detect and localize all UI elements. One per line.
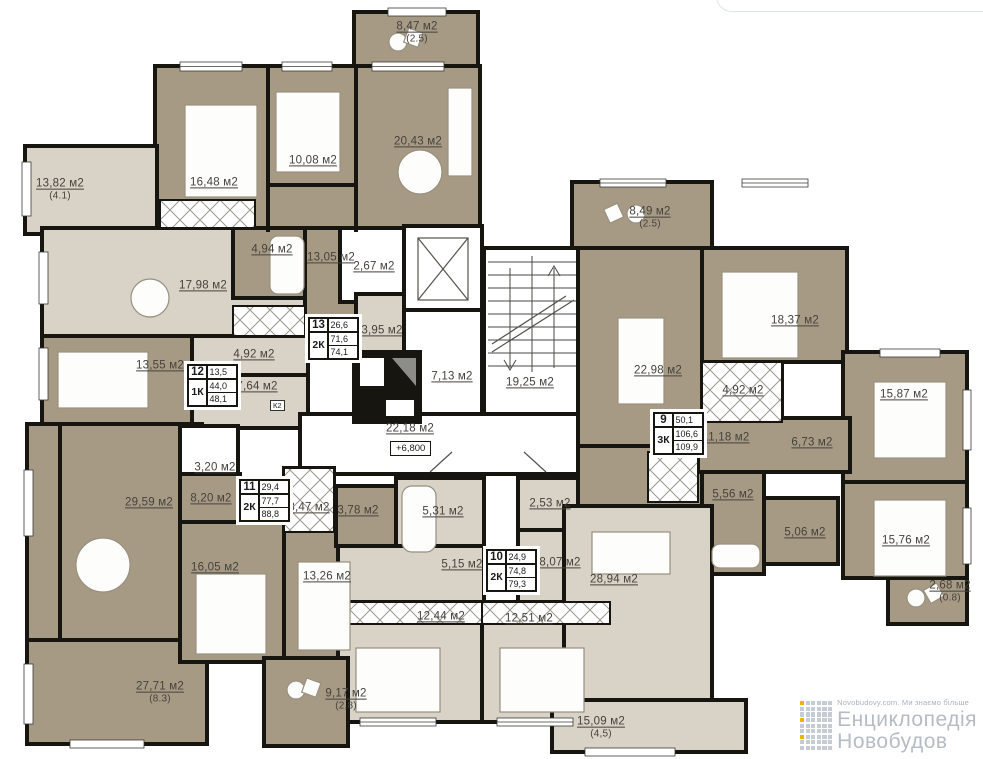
apartment-number: 13 (310, 319, 327, 331)
watermark-logo-square (800, 718, 804, 722)
watermark-logo-square (806, 735, 810, 739)
apartment-number: 12 (189, 366, 206, 378)
room-area-label: 9,17 м2(2,8) (325, 688, 366, 713)
room-area-label: 5,56 м2 (712, 488, 753, 501)
watermark: Novobudovy.com. Ми знаємо більше Енцикло… (800, 699, 977, 753)
watermark-logo-square (828, 707, 832, 711)
watermark-logo-square (811, 707, 815, 711)
floor-level-badge: +6,800 (390, 441, 431, 456)
net-area-value: 74,8 (507, 565, 535, 577)
living-area-value: 26,6 (329, 319, 357, 331)
utility-shaft (352, 350, 422, 424)
room-area-value: 2,68 м2 (929, 580, 970, 592)
watermark-logo-square (800, 712, 804, 716)
watermark-logo-square (811, 746, 815, 750)
room-area-value: 22,18 м2 (386, 422, 434, 434)
room-area-label: 3,95 м2 (361, 324, 402, 337)
room-area-value: 3,95 м2 (361, 324, 402, 336)
room-area-label: 13,26 м2 (303, 570, 351, 583)
room-area-value: 13,55 м2 (136, 359, 184, 371)
watermark-logo-square (800, 701, 804, 705)
net-area-value: 77,7 (260, 495, 288, 507)
watermark-title-line2: Новобудов (837, 731, 977, 753)
room-area-label: 3,20 м2 (194, 461, 235, 474)
watermark-logo-square (800, 735, 804, 739)
watermark-logo-square (828, 740, 832, 744)
watermark-logo-square (817, 701, 821, 705)
room-area-value: 8,20 м2 (190, 492, 231, 504)
room-area-value: 15,09 м2 (577, 716, 625, 728)
watermark-logo-square (800, 707, 804, 711)
room-area-value: 18,37 м2 (771, 314, 819, 326)
room-area-label: 8,20 м2 (190, 492, 231, 505)
room-area-value: 12,51 м2 (505, 612, 553, 624)
room-area-label: 3,47 м2 (288, 501, 329, 514)
room-area-label: 10,08 м2 (289, 154, 337, 167)
room-area-value: 2,53 м2 (529, 497, 570, 509)
apartment-room-count: 2К (241, 495, 258, 521)
watermark-logo-square (817, 740, 821, 744)
room-area-label: 17,98 м2 (179, 279, 227, 292)
room-area-value: 4,94 м2 (251, 243, 292, 255)
watermark-logo-square (817, 729, 821, 733)
watermark-logo-square (817, 746, 821, 750)
apartment-spec-table: 102К24,974,879,3 (486, 549, 537, 592)
room-area-label: 6,73 м2 (791, 436, 832, 449)
watermark-logo-square (817, 718, 821, 722)
room-area-value: 13,05 м2 (307, 251, 355, 263)
room-area-value: 29,59 м2 (125, 496, 173, 508)
room-area-value: 3,47 м2 (288, 501, 329, 513)
ui-card-corner (716, 0, 983, 12)
room-area-value: 5,56 м2 (712, 488, 753, 500)
room-area-label: 8,07 м2 (539, 556, 580, 569)
room-area-value: 17,98 м2 (179, 279, 227, 291)
watermark-logo-square (800, 740, 804, 744)
room-area-extra: (8.3) (136, 694, 184, 706)
room-area-label: 29,59 м2 (125, 496, 173, 509)
room-area-value: 16,48 м2 (190, 176, 238, 188)
watermark-logo-square (806, 724, 810, 728)
room-area-value: 27,71 м2 (136, 681, 184, 693)
apartment-room-count: 3К (655, 428, 672, 454)
room-area-value: 7,13 м2 (431, 370, 472, 382)
room-area-label: 28,94 м2 (590, 573, 638, 586)
room-area-value: 9,17 м2 (325, 688, 366, 700)
total-area-value: 88,8 (260, 508, 288, 520)
room-area-label: 3,78 м2 (337, 504, 378, 517)
watermark-logo-square (811, 735, 815, 739)
watermark-logo-square (811, 740, 815, 744)
room-area-value: 13,82 м2 (36, 178, 84, 190)
walls-and-rooms (25, 12, 967, 752)
apartment-number: 11 (241, 481, 258, 493)
room-area-label: 4,94 м2 (251, 243, 292, 256)
room-area-label: 19,25 м2 (506, 376, 554, 389)
total-area-value: 79,3 (507, 578, 535, 590)
room-area-extra: (4.1) (36, 191, 84, 203)
watermark-logo-square (828, 724, 832, 728)
watermark-tagline: Novobudovy.com. Ми знаємо більше (837, 699, 977, 707)
apartment-spec-table: 132К26,671,674,1 (308, 317, 359, 360)
room-area-label: 8,49 м2(2.5) (629, 206, 670, 231)
watermark-logo-square (828, 746, 832, 750)
room-area-value: 15,87 м2 (880, 388, 928, 400)
watermark-logo-square (817, 735, 821, 739)
room-area-label: 13,55 м2 (136, 359, 184, 372)
living-area-value: 29,4 (260, 481, 288, 493)
room-area-label: 5,31 м2 (422, 505, 463, 518)
watermark-logo-square (800, 746, 804, 750)
watermark-logo-square (822, 707, 826, 711)
room-area-label: 18,37 м2 (771, 314, 819, 327)
watermark-logo-square (822, 729, 826, 733)
apartment-room-count: 2К (310, 333, 327, 359)
room-area-label: 12,51 м2 (505, 612, 553, 625)
watermark-logo-square (811, 718, 815, 722)
apartment-spec-table: 121К13,544,048,1 (187, 364, 238, 407)
watermark-logo-square (806, 701, 810, 705)
room-area-value: 8,47 м2 (396, 21, 437, 33)
room-area-label: 15,09 м2(4,5) (577, 716, 625, 741)
room-area-label: 16,48 м2 (190, 176, 238, 189)
living-area-value: 24,9 (507, 551, 535, 563)
room-area-extra: (0.8) (929, 593, 970, 605)
watermark-logo-square (817, 707, 821, 711)
watermark-logo-square (828, 701, 832, 705)
floor-plan-canvas (0, 0, 983, 759)
living-area-value: 50,1 (674, 414, 702, 426)
room-area-value: 3,20 м2 (194, 461, 235, 473)
apartment-room-count: 1К (189, 380, 206, 406)
watermark-logo-square (817, 724, 821, 728)
room-area-label: 2,53 м2 (529, 497, 570, 510)
watermark-logo-square (822, 746, 826, 750)
room-area-label: 2,68 м2(0.8) (929, 580, 970, 605)
watermark-logo-square (806, 729, 810, 733)
room-area-value: 5,06 м2 (784, 526, 825, 538)
room-area-label: 16,05 м2 (191, 561, 239, 574)
room-area-value: 8,07 м2 (539, 556, 580, 568)
room-area-label: 20,43 м2 (394, 135, 442, 148)
room-area-value: 11,18 м2 (702, 431, 749, 443)
room-area-label: 15,87 м2 (880, 388, 928, 401)
total-area-value: 74,1 (329, 346, 357, 358)
watermark-logo-square (817, 712, 821, 716)
room-area-label: 13,05 м2 (307, 251, 355, 264)
room-area-value: 7,64 м2 (236, 380, 277, 392)
watermark-logo (800, 701, 832, 750)
watermark-logo-square (822, 740, 826, 744)
room-area-extra: (2,8) (325, 701, 366, 713)
total-area-value: 48,1 (208, 393, 236, 405)
room-area-label: 7,64 м2 (236, 380, 277, 393)
watermark-logo-square (806, 718, 810, 722)
apartment-spec-table: 112К29,477,788,8 (239, 479, 290, 522)
watermark-logo-square (828, 712, 832, 716)
room-area-value: 4,92 м2 (233, 348, 274, 360)
watermark-logo-square (806, 707, 810, 711)
watermark-logo-square (806, 712, 810, 716)
room-area-value: 4,92 м2 (722, 384, 763, 396)
room-area-label: 8,47 м2(2.5) (396, 21, 437, 46)
room-area-value: 3,78 м2 (337, 504, 378, 516)
living-area-value: 13,5 (208, 366, 236, 378)
room-area-value: 13,26 м2 (303, 570, 351, 582)
room-area-label: 5,06 м2 (784, 526, 825, 539)
room-area-label: 15,76 м2 (882, 534, 930, 547)
room-area-value: 20,43 м2 (394, 135, 442, 147)
room-area-value: 6,73 м2 (791, 436, 832, 448)
room-area-extra: (2.5) (396, 34, 437, 46)
room-area-value: 8,49 м2 (629, 206, 670, 218)
watermark-logo-square (822, 701, 826, 705)
room-area-value: 16,05 м2 (191, 561, 239, 573)
net-area-value: 71,6 (329, 333, 357, 345)
watermark-logo-square (828, 729, 832, 733)
room-area-value: 19,25 м2 (506, 376, 554, 388)
room-area-value: 5,31 м2 (422, 505, 463, 517)
net-area-value: 44,0 (208, 380, 236, 392)
room-area-value: 2,67 м2 (353, 260, 394, 272)
watermark-logo-square (800, 729, 804, 733)
room-area-value: 28,94 м2 (590, 573, 638, 585)
room-area-label: 7,13 м2 (431, 370, 472, 383)
floor-plan-page: 8,47 м2(2.5)16,48 м210,08 м220,43 м213,8… (0, 0, 983, 759)
room-area-label: 22,18 м2 (386, 422, 434, 435)
room-area-value: 10,08 м2 (289, 154, 337, 166)
watermark-logo-square (806, 746, 810, 750)
room-area-extra: (4,5) (577, 729, 625, 741)
watermark-logo-square (822, 718, 826, 722)
apartment-number: 9 (655, 414, 672, 426)
room-area-value: 12,44 м2 (417, 610, 465, 622)
room-area-value: 15,76 м2 (882, 534, 930, 546)
watermark-logo-square (822, 712, 826, 716)
watermark-logo-square (828, 718, 832, 722)
room-area-label: 5,15 м2 (441, 558, 482, 571)
watermark-logo-square (800, 724, 804, 728)
watermark-logo-square (822, 735, 826, 739)
watermark-logo-square (828, 735, 832, 739)
room-area-label: 27,71 м2(8.3) (136, 681, 184, 706)
watermark-logo-square (811, 729, 815, 733)
watermark-logo-square (811, 701, 815, 705)
room-area-label: 22,98 м2 (634, 364, 682, 377)
room-area-label: 11,18 м2 (702, 431, 749, 444)
apartment-number: 10 (488, 551, 505, 563)
watermark-logo-square (811, 724, 815, 728)
watermark-title-line1: Енциклопедія (837, 709, 977, 731)
room-area-label: 13,82 м2(4.1) (36, 178, 84, 203)
riser-label: К2 (270, 400, 285, 411)
room-area-label: 4,92 м2 (233, 348, 274, 361)
room-area-value: 5,15 м2 (441, 558, 482, 570)
room-area-label: 2,67 м2 (353, 260, 394, 273)
apartment-spec-table: 93К50,1106,6109,9 (653, 412, 704, 455)
room-area-value: 22,98 м2 (634, 364, 682, 376)
room-area-extra: (2.5) (629, 219, 670, 231)
net-area-value: 106,6 (674, 428, 702, 440)
room-area-label: 4,92 м2 (722, 384, 763, 397)
watermark-logo-square (811, 712, 815, 716)
watermark-logo-square (806, 740, 810, 744)
room-area-label: 12,44 м2 (417, 610, 465, 623)
watermark-logo-square (822, 724, 826, 728)
apartment-room-count: 2К (488, 565, 505, 591)
total-area-value: 109,9 (674, 441, 702, 453)
